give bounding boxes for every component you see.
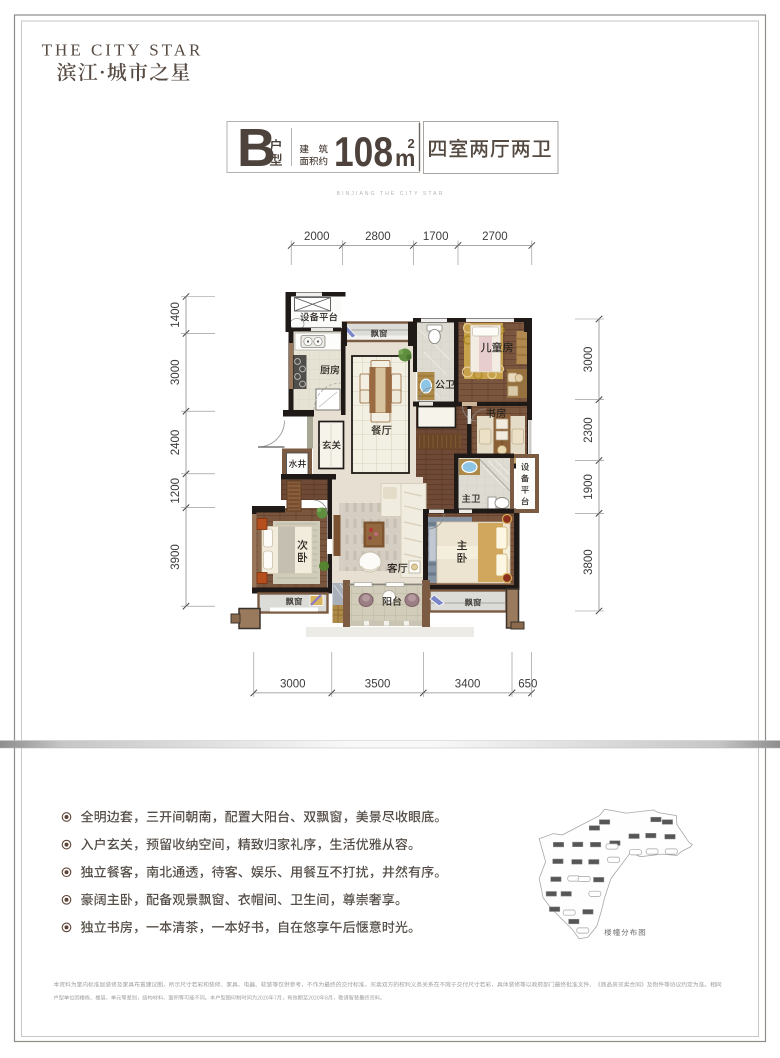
svg-text:3500: 3500 [365,679,391,691]
svg-text:3900: 3900 [170,544,182,570]
svg-text:108: 108 [334,128,393,175]
svg-text:THE CITY STAR: THE CITY STAR [42,41,204,60]
svg-text:3800: 3800 [583,549,595,575]
svg-text:2700: 2700 [482,231,508,243]
svg-text:3000: 3000 [280,679,306,691]
svg-text:B: B [237,118,276,178]
svg-text:2000: 2000 [304,231,330,243]
svg-text:1900: 1900 [583,474,595,500]
svg-text:1700: 1700 [423,231,449,243]
svg-text:BINJIANG THE CITY STAR: BINJIANG THE CITY STAR [337,191,445,197]
svg-text:3000: 3000 [583,347,595,373]
svg-text:2300: 2300 [583,417,595,443]
svg-text:1400: 1400 [170,302,182,328]
svg-text:2: 2 [408,136,415,151]
svg-text:3400: 3400 [455,679,481,691]
svg-text:2800: 2800 [365,231,391,243]
svg-text:650: 650 [518,679,537,691]
svg-text:1200: 1200 [170,478,182,504]
svg-text:2400: 2400 [170,430,182,456]
svg-text:3000: 3000 [170,360,182,386]
